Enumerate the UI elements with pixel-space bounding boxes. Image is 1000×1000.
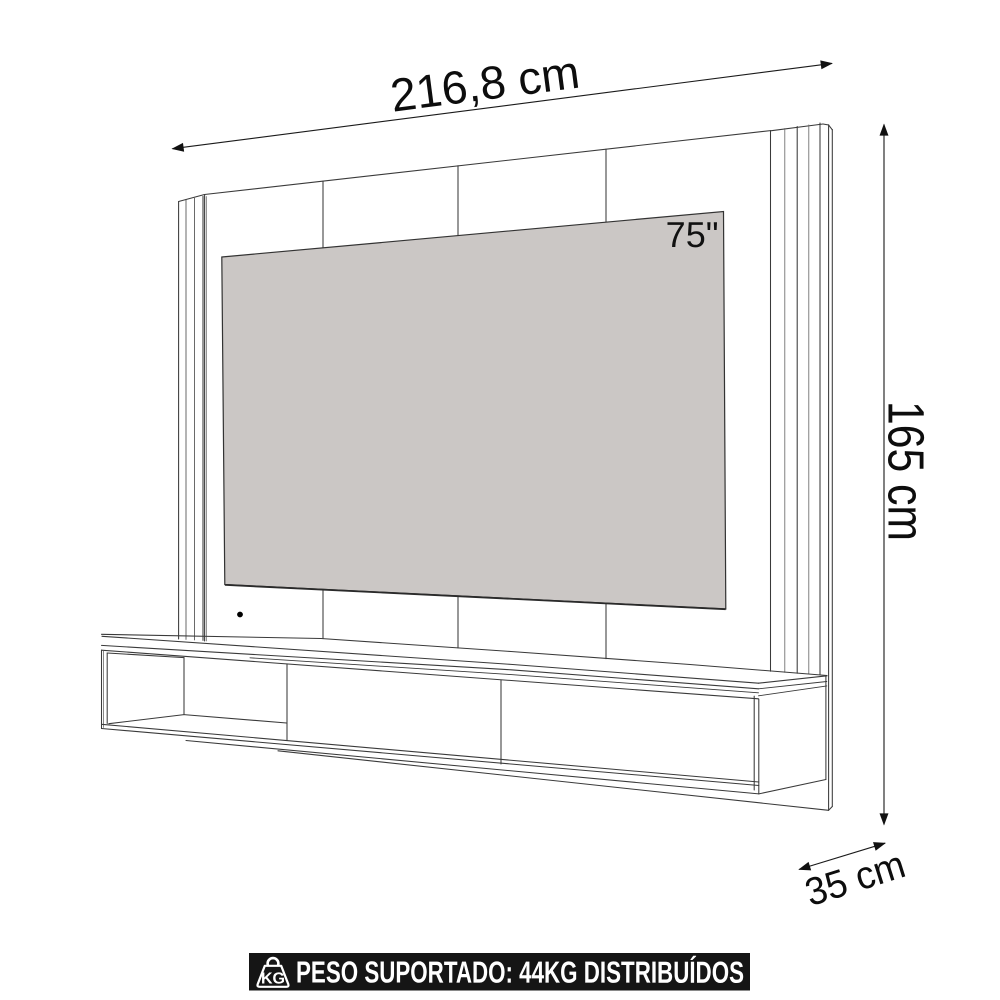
- svg-text:165 cm: 165 cm: [878, 401, 935, 541]
- svg-text:KG: KG: [261, 970, 285, 987]
- svg-text:PESO SUPORTADO: 44KG DISTRIBUÍ: PESO SUPORTADO: 44KG DISTRIBUÍDOS: [296, 955, 744, 990]
- svg-text:75": 75": [666, 214, 719, 255]
